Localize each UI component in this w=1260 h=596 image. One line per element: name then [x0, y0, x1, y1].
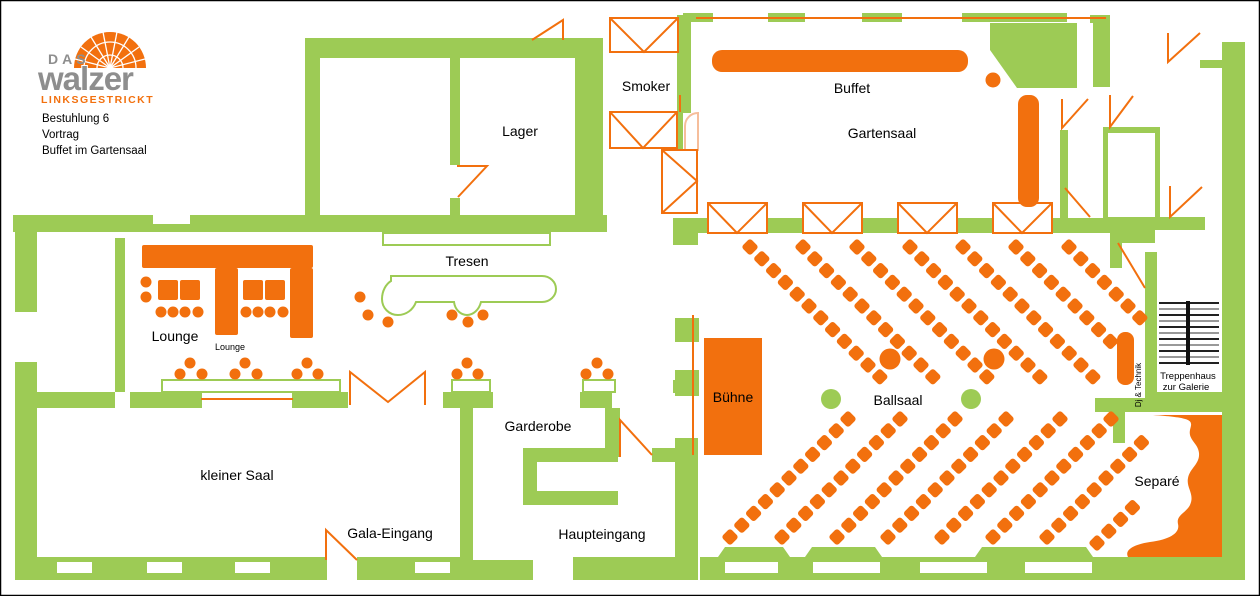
logo-subtitle: LINKSGESTRICKT [41, 94, 154, 106]
stool [463, 317, 474, 328]
label-lounge-small: Lounge [215, 342, 245, 352]
stool [185, 358, 196, 369]
stool [241, 307, 252, 318]
wall-table [383, 233, 550, 245]
stool [197, 369, 208, 380]
standing-table-long [162, 380, 340, 392]
stool [462, 358, 473, 369]
label-gala-eingang: Gala-Eingang [347, 525, 433, 541]
buffet-table [712, 50, 968, 72]
label-gartensaal: Gartensaal [848, 125, 916, 141]
label-treppenhaus-1: Treppenhaus [1160, 371, 1216, 382]
label-buffet: Buffet [834, 80, 870, 96]
stool [253, 307, 264, 318]
label-dj-technik: Dj & Technik [1134, 362, 1143, 407]
label-tresen: Tresen [445, 253, 488, 269]
arched-door [685, 113, 698, 150]
stool [452, 369, 463, 380]
stair-rail [1186, 301, 1190, 365]
event-info-line3: Buffet im Gartensaal [42, 145, 147, 157]
gartensaal-door-1 [708, 203, 767, 233]
stool [141, 277, 152, 288]
label-lager: Lager [502, 123, 538, 139]
label-treppenhaus-2: zur Galerie [1163, 382, 1209, 393]
stool [603, 369, 614, 380]
stool [265, 307, 276, 318]
label-buehne: Bühne [713, 389, 754, 405]
stool [478, 310, 489, 321]
stool [168, 307, 179, 318]
stool [141, 292, 152, 303]
stool [156, 307, 167, 318]
label-separe: Separé [1134, 473, 1179, 489]
smoker-bottom-window [610, 112, 677, 148]
logo-name: walzer [37, 60, 134, 97]
stool [581, 369, 592, 380]
stool [355, 292, 366, 303]
label-ballsaal: Ballsaal [873, 392, 922, 408]
stool [252, 369, 263, 380]
floorplan-svg: Smoker Lager Buffet Gartensaal Tresen Lo… [0, 0, 1260, 596]
gartensaal-door-2 [803, 203, 862, 233]
gartensaal-door-4 [993, 203, 1052, 233]
column [961, 389, 981, 409]
floorplan-page: Smoker Lager Buffet Gartensaal Tresen Lo… [0, 0, 1260, 596]
buffet-stool [986, 73, 1001, 88]
event-info-line2: Vortrag [42, 129, 79, 141]
stool [230, 369, 241, 380]
stool [383, 317, 394, 328]
stool [193, 307, 204, 318]
round-table [984, 349, 1005, 370]
stool [302, 358, 313, 369]
stool [292, 369, 303, 380]
label-kleiner-saal: kleiner Saal [200, 467, 273, 483]
stool [175, 369, 186, 380]
dj-booth [1117, 332, 1134, 385]
stool [313, 369, 324, 380]
stool [592, 358, 603, 369]
standing-table-1 [452, 380, 490, 392]
label-haupteingang: Haupteingang [558, 526, 645, 542]
hall-side-window [662, 150, 697, 213]
event-info-line1: Bestuhlung 6 [42, 113, 109, 125]
stool [447, 310, 458, 321]
stool [363, 310, 374, 321]
label-smoker: Smoker [622, 78, 671, 94]
round-table [880, 349, 901, 370]
stool [180, 307, 191, 318]
smoker-top-window [610, 18, 678, 52]
garderobe-counter [523, 448, 618, 462]
standing-table-2 [583, 380, 615, 392]
gartensaal-sideboard [1018, 95, 1039, 207]
stool [473, 369, 484, 380]
gartensaal-door-3 [898, 203, 957, 233]
label-lounge: Lounge [152, 328, 199, 344]
column [821, 389, 841, 409]
label-garderobe: Garderobe [505, 418, 572, 434]
stool [240, 358, 251, 369]
stool [278, 307, 289, 318]
